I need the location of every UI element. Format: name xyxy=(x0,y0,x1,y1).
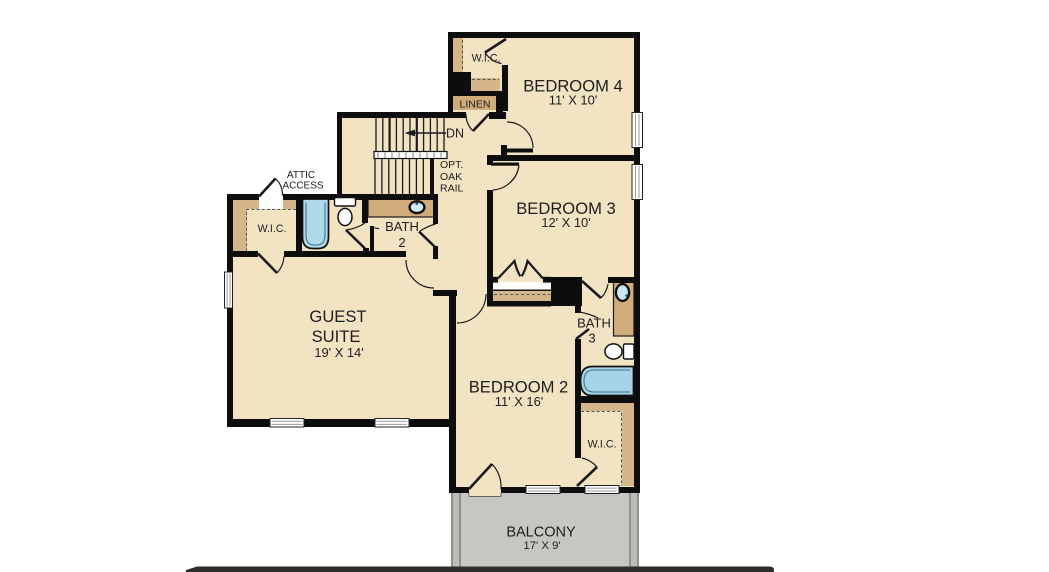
svg-text:GUEST: GUEST xyxy=(309,307,366,326)
svg-text:ACCESS: ACCESS xyxy=(282,181,323,192)
svg-text:BATH: BATH xyxy=(577,316,611,331)
svg-text:2: 2 xyxy=(398,235,405,250)
svg-text:SUITE: SUITE xyxy=(312,327,361,346)
svg-text:BATH: BATH xyxy=(385,219,419,234)
svg-text:OPT.: OPT. xyxy=(440,159,463,171)
svg-text:11' X 16': 11' X 16' xyxy=(495,394,543,409)
svg-text:W.I.C.: W.I.C. xyxy=(472,53,501,65)
svg-text:W.I.C.: W.I.C. xyxy=(258,223,287,235)
svg-text:RAIL: RAIL xyxy=(440,183,464,195)
svg-text:12' X 10': 12' X 10' xyxy=(541,215,590,230)
svg-text:OAK: OAK xyxy=(440,171,462,183)
svg-text:LINEN: LINEN xyxy=(460,99,491,111)
svg-text:BALCONY: BALCONY xyxy=(506,525,576,541)
svg-text:17' X 9': 17' X 9' xyxy=(523,540,560,552)
svg-text:DN: DN xyxy=(446,127,464,141)
svg-text:W.I.C.: W.I.C. xyxy=(588,439,617,451)
svg-text:19' X 14': 19' X 14' xyxy=(314,345,363,360)
svg-text:ATTIC: ATTIC xyxy=(287,170,315,181)
svg-text:3: 3 xyxy=(588,331,595,346)
svg-text:11' X 10': 11' X 10' xyxy=(549,93,597,108)
